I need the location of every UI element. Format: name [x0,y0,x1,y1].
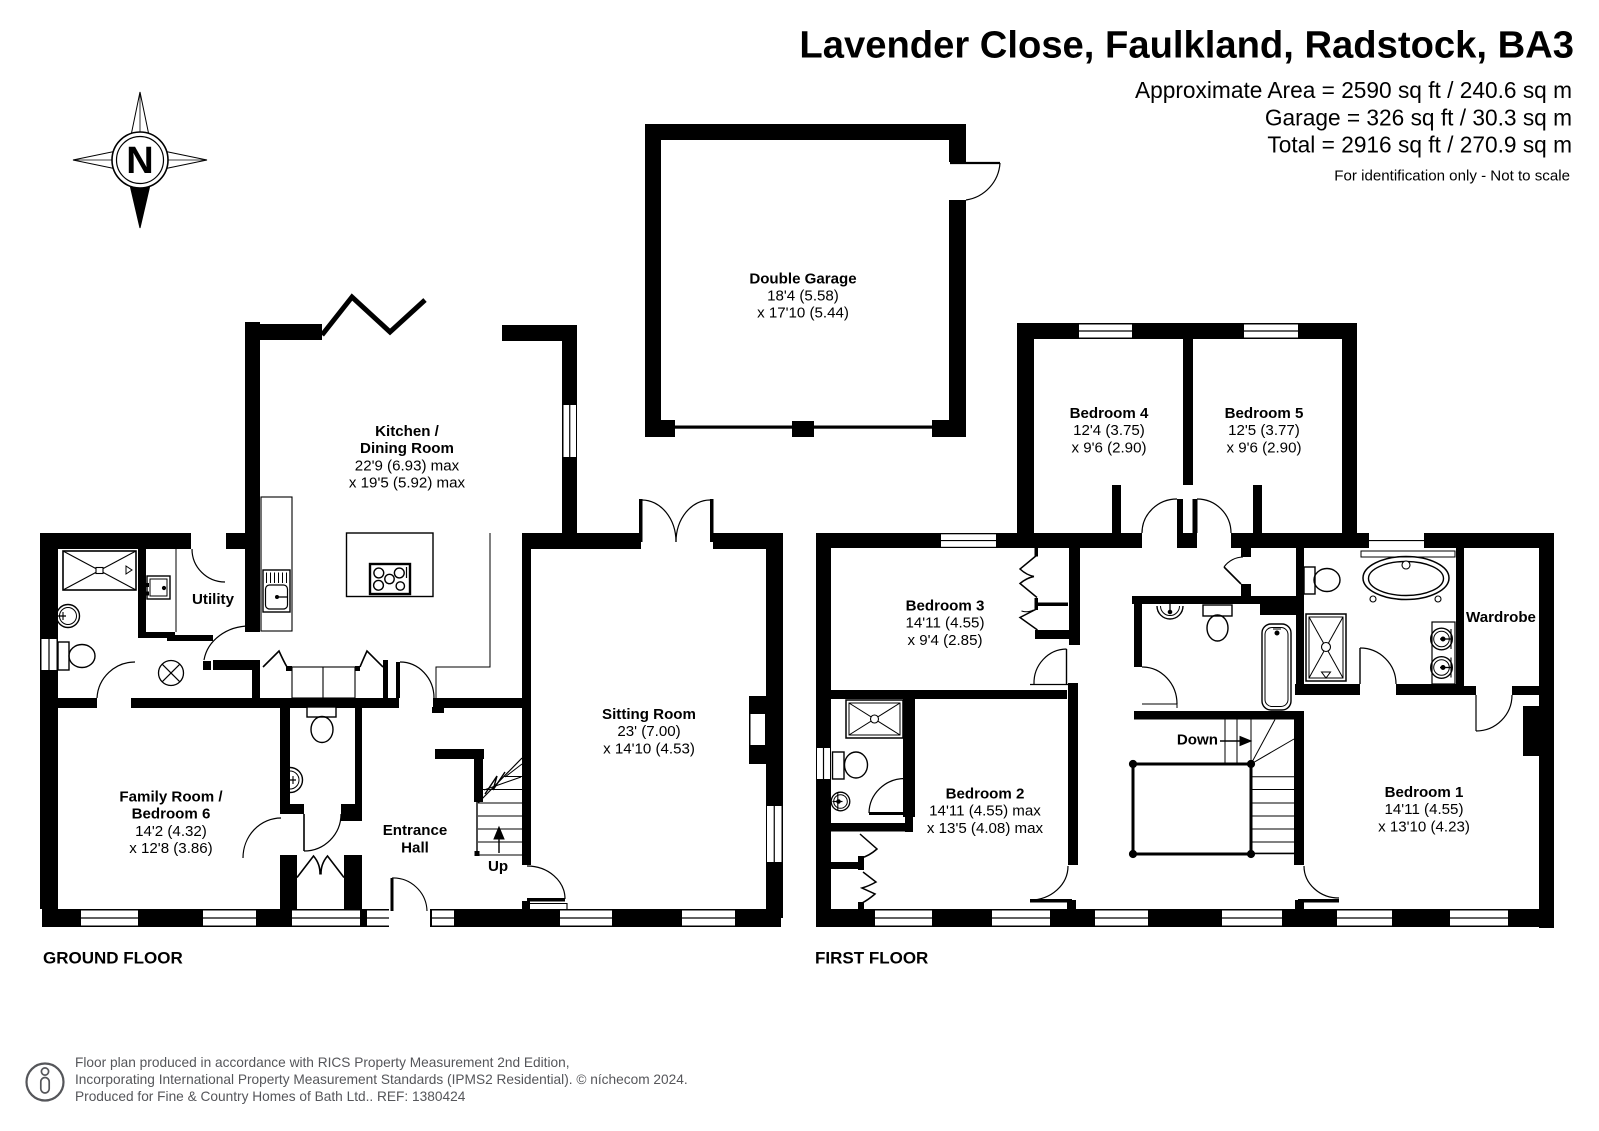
svg-text:Bedroom 6: Bedroom 6 [132,806,211,823]
svg-text:Produced for Fine & Country Ho: Produced for Fine & Country Homes of Bat… [75,1089,466,1104]
svg-text:Garage = 326 sq ft / 30.3 sq m: Garage = 326 sq ft / 30.3 sq m [1265,105,1572,131]
svg-text:14'11 (4.55): 14'11 (4.55) [1385,801,1464,818]
svg-text:Wardrobe: Wardrobe [1466,609,1536,626]
svg-text:Bedroom 1: Bedroom 1 [1385,784,1464,801]
svg-text:Entrance: Entrance [383,822,448,839]
svg-text:x 9'4 (2.85): x 9'4 (2.85) [907,632,982,649]
svg-text:Up: Up [488,858,508,875]
svg-text:Down: Down [1177,732,1218,749]
svg-text:Floor plan produced in accorda: Floor plan produced in accordance with R… [75,1055,570,1070]
svg-text:x 13'10 (4.23): x 13'10 (4.23) [1378,818,1470,835]
svg-text:x 9'6 (2.90): x 9'6 (2.90) [1226,439,1301,456]
svg-text:23' (7.00): 23' (7.00) [617,723,680,740]
svg-text:12'5 (3.77): 12'5 (3.77) [1228,422,1300,439]
svg-text:18'4 (5.58): 18'4 (5.58) [767,288,839,305]
svg-text:N: N [126,140,153,182]
svg-text:x 17'10 (5.44): x 17'10 (5.44) [757,305,849,322]
svg-text:12'4 (3.75): 12'4 (3.75) [1073,422,1145,439]
svg-text:For identification only - Not: For identification only - Not to scale [1334,168,1570,185]
svg-text:Hall: Hall [401,839,429,856]
svg-text:FIRST FLOOR: FIRST FLOOR [815,949,928,968]
svg-text:Family Room /: Family Room / [119,789,223,806]
svg-text:Utility: Utility [192,591,235,608]
svg-text:Bedroom 5: Bedroom 5 [1225,405,1304,422]
svg-text:x 14'10 (4.53): x 14'10 (4.53) [603,740,695,757]
svg-text:Incorporating International Pr: Incorporating International Property Mea… [75,1072,688,1087]
svg-text:Bedroom 3: Bedroom 3 [906,598,985,615]
svg-text:Sitting Room: Sitting Room [602,706,696,723]
svg-text:x 12'8 (3.86): x 12'8 (3.86) [129,840,212,857]
svg-text:Kitchen /: Kitchen / [375,423,440,440]
svg-text:Bedroom 4: Bedroom 4 [1070,405,1149,422]
svg-text:Double Garage: Double Garage [749,270,856,287]
svg-text:x 19'5 (5.92) max: x 19'5 (5.92) max [349,475,466,492]
svg-text:Total = 2916 sq ft / 270.9 sq: Total = 2916 sq ft / 270.9 sq m [1267,132,1572,158]
svg-text:Approximate Area = 2590 sq ft: Approximate Area = 2590 sq ft / 240.6 sq… [1135,77,1572,103]
svg-text:x 13'5 (4.08) max: x 13'5 (4.08) max [927,820,1044,837]
svg-text:14'11 (4.55): 14'11 (4.55) [906,615,985,632]
svg-text:Dining Room: Dining Room [360,440,454,457]
svg-text:x 9'6 (2.90): x 9'6 (2.90) [1071,439,1146,456]
svg-text:22'9 (6.93) max: 22'9 (6.93) max [355,457,460,474]
svg-text:14'11 (4.55) max: 14'11 (4.55) max [929,803,1041,820]
svg-text:Lavender Close, Faulkland, Rad: Lavender Close, Faulkland, Radstock, BA3 [799,24,1574,67]
svg-text:14'2 (4.32): 14'2 (4.32) [135,823,207,840]
svg-text:Bedroom 2: Bedroom 2 [946,786,1025,803]
svg-text:GROUND FLOOR: GROUND FLOOR [43,949,183,968]
